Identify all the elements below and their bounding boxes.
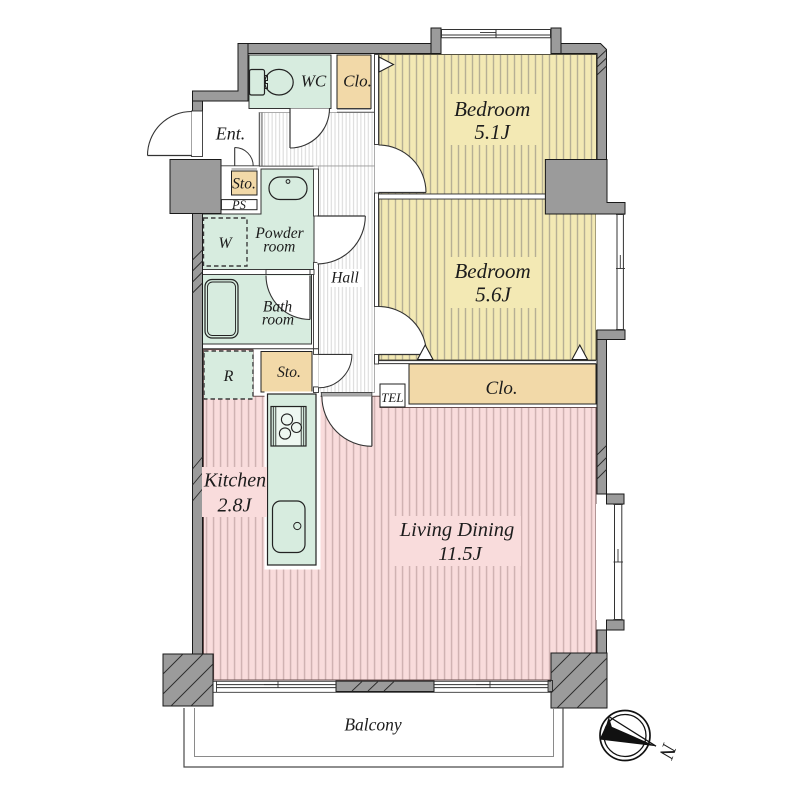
svg-text:Bedroom: Bedroom [454, 259, 530, 283]
svg-text:TEL: TEL [381, 390, 403, 405]
svg-text:5.6J: 5.6J [475, 283, 512, 307]
svg-text:Living Dining: Living Dining [399, 519, 514, 541]
svg-text:W: W [218, 235, 233, 252]
svg-text:Clo.: Clo. [343, 72, 372, 91]
svg-text:2.8J: 2.8J [218, 495, 253, 517]
svg-text:room: room [262, 312, 294, 329]
svg-text:Balcony: Balcony [344, 715, 402, 735]
svg-text:5.1J: 5.1J [474, 120, 511, 144]
svg-text:room: room [263, 239, 295, 256]
svg-text:Sto.: Sto. [277, 364, 301, 381]
svg-text:Ent.: Ent. [215, 124, 246, 144]
svg-text:Bedroom: Bedroom [454, 97, 530, 121]
svg-text:R: R [223, 368, 234, 385]
svg-text:WC: WC [301, 72, 327, 91]
svg-text:PS: PS [231, 198, 247, 212]
svg-text:Clo.: Clo. [485, 378, 517, 399]
svg-text:Sto.: Sto. [232, 176, 256, 193]
svg-text:11.5J: 11.5J [438, 543, 482, 565]
svg-text:Hall: Hall [330, 270, 359, 287]
svg-text:Kitchen: Kitchen [203, 470, 266, 492]
